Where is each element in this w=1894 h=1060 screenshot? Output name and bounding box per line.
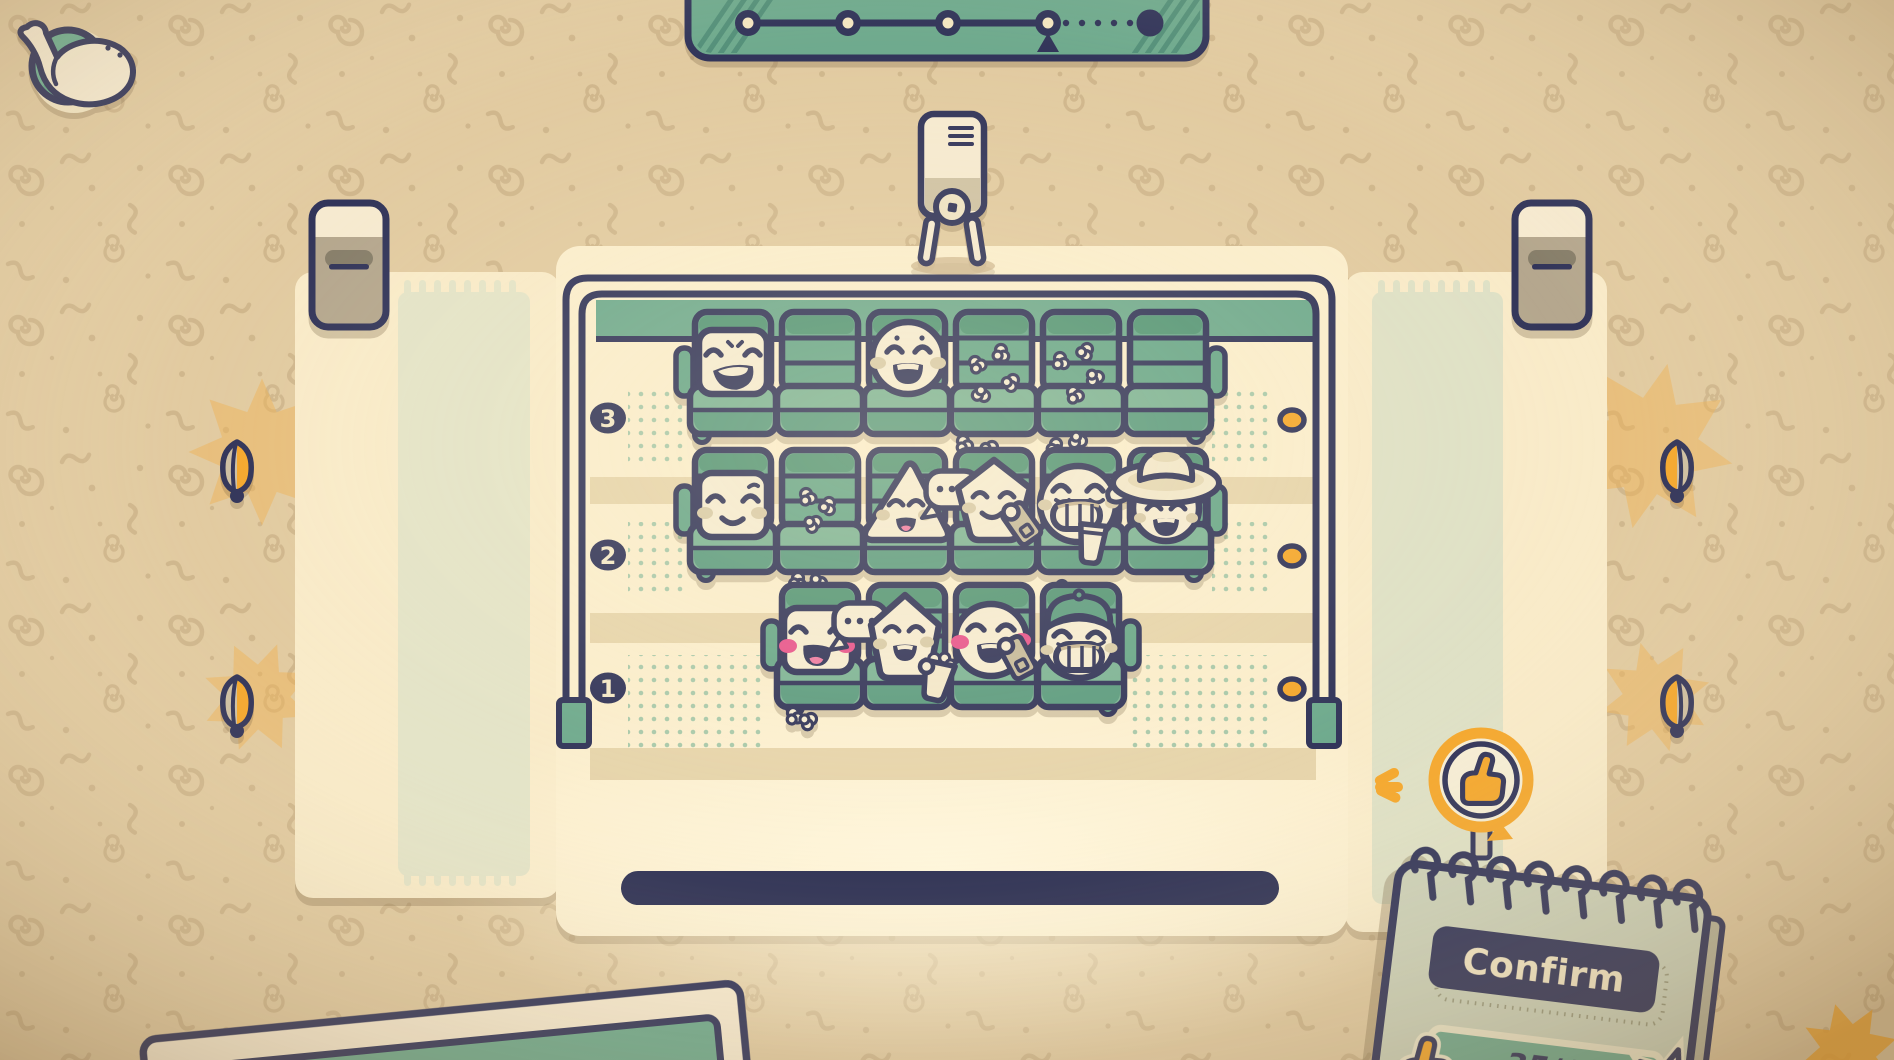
drink-cup-icon [1077,524,1107,565]
row-number-2: 2 [600,542,617,570]
guest-cap-grinning [1041,591,1118,679]
left-rug [398,280,530,886]
seat-r3-c5[interactable] [1038,312,1124,434]
left-door [312,203,386,327]
guest-round-laughing [870,322,946,394]
seat-r3-c4[interactable] [951,312,1037,434]
seat-r3-c2[interactable] [777,312,863,434]
row-number-1: 1 [600,675,617,703]
guest-square-smiling [697,473,767,537]
seat-r3-c6[interactable] [1125,312,1211,434]
game-screen: 3 2 1 [0,0,1894,1060]
guest-square-laughing [699,330,767,394]
timeline-end-dot [1137,10,1164,37]
screen-bar [621,871,1279,905]
progress-track [688,0,1229,60]
row-number-3: 3 [600,405,617,433]
right-door [1515,203,1589,327]
